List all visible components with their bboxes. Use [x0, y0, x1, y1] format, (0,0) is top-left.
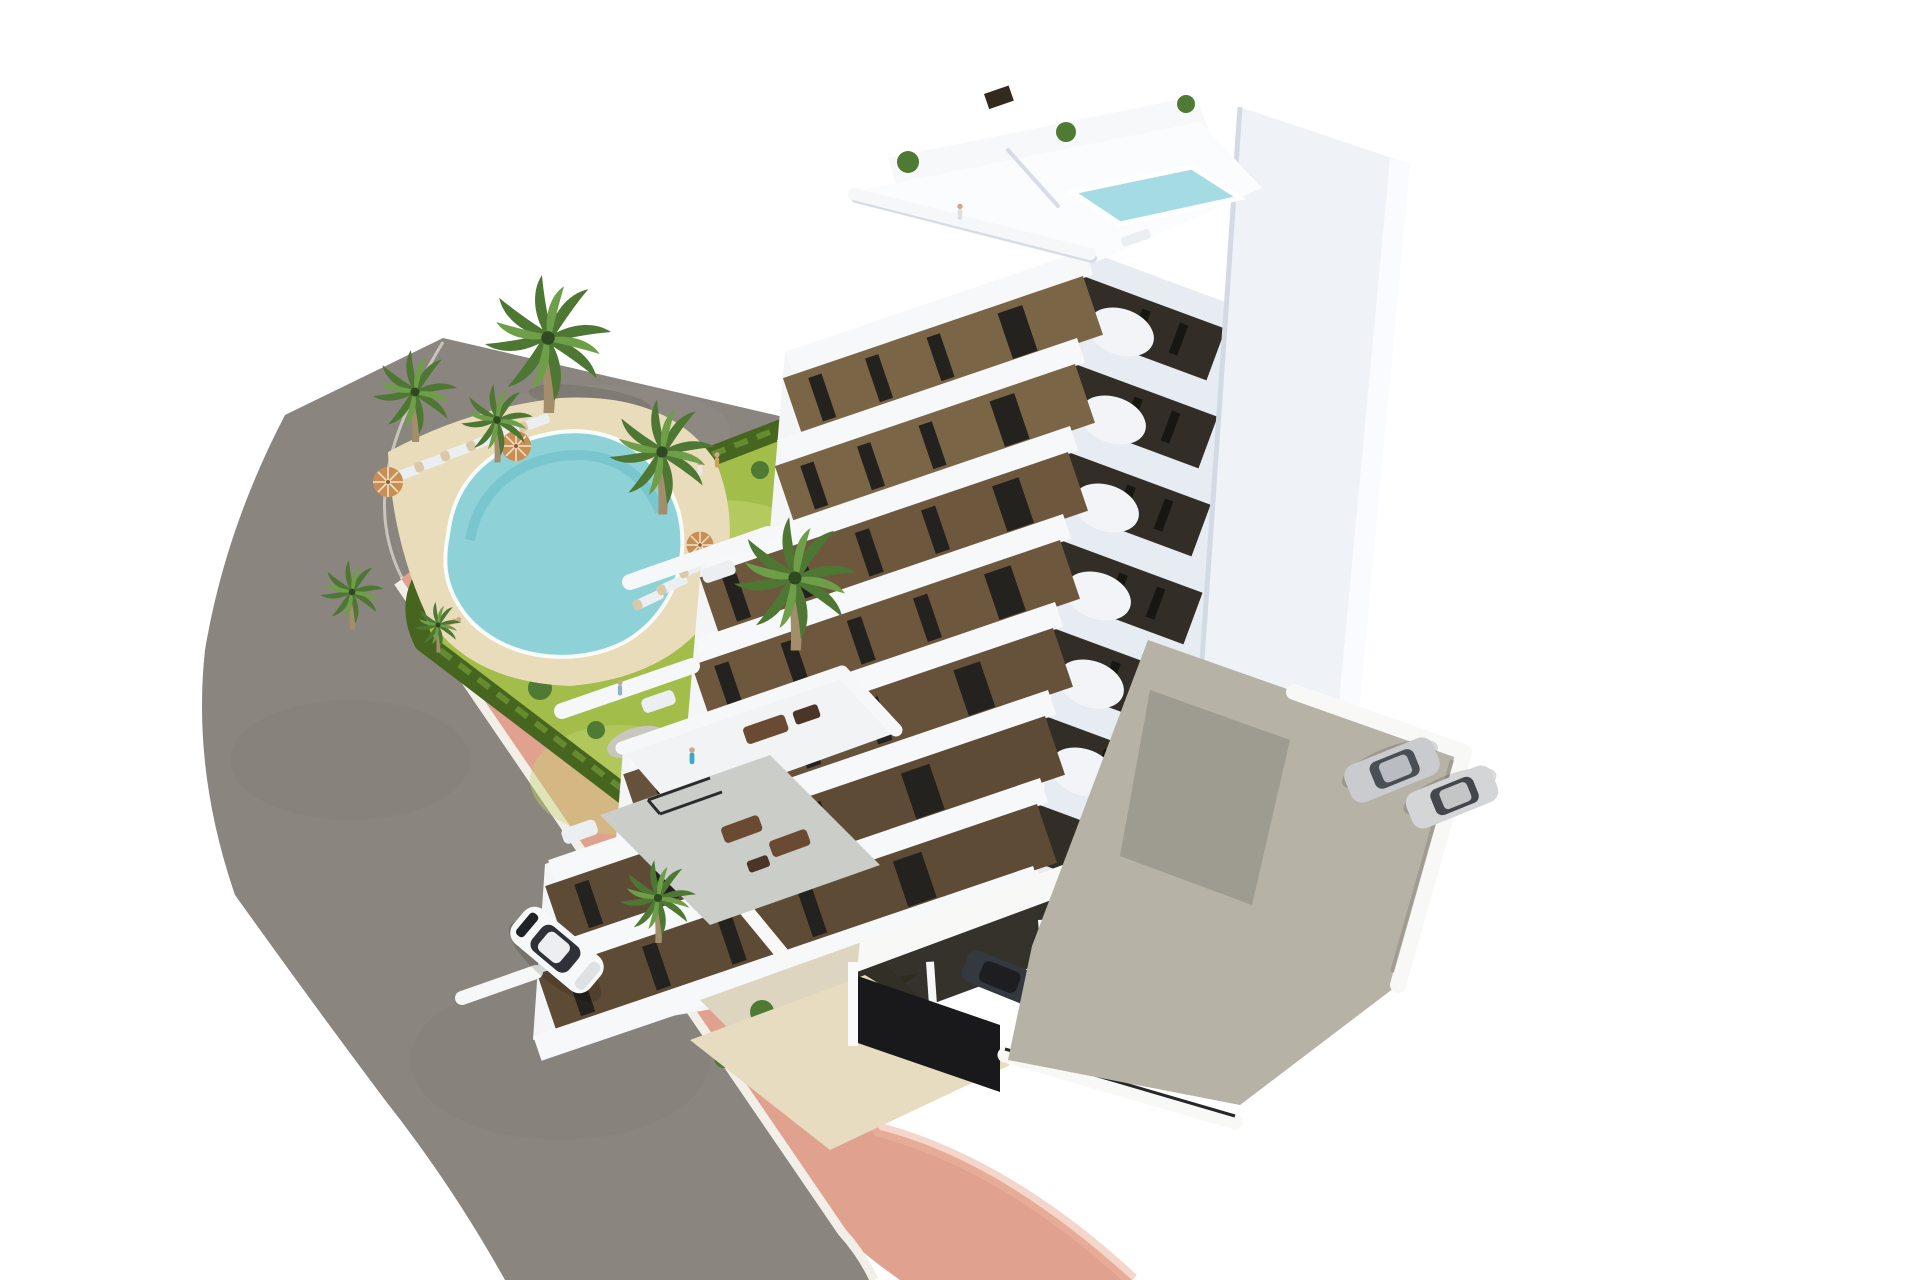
roof-plant [1177, 95, 1195, 113]
gate-post [848, 962, 858, 1046]
scene-svg [0, 0, 1920, 1280]
roof-plant [897, 151, 919, 173]
roof-plant [1056, 122, 1076, 142]
render-canvas [0, 0, 1920, 1280]
